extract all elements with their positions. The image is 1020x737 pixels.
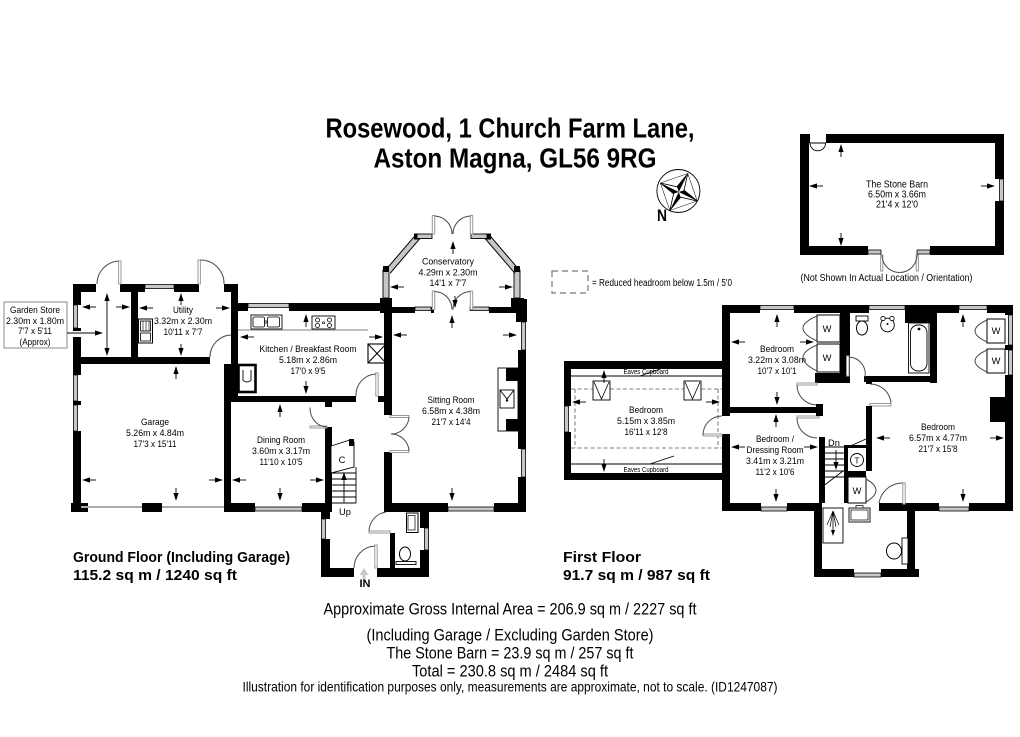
svg-text:(Not Shown In Actual Location: (Not Shown In Actual Location / Orientat… [801,272,973,284]
svg-text:Eaves Cupboard: Eaves Cupboard [624,369,669,376]
svg-text:Sitting Room: Sitting Room [428,395,475,405]
svg-text:Illustration for identificatio: Illustration for identification purposes… [243,679,778,695]
svg-text:W: W [992,326,1001,336]
svg-text:17'3 x 15'11: 17'3 x 15'11 [134,439,177,449]
svg-text:3.41m x 3.21m: 3.41m x 3.21m [746,456,804,466]
svg-text:115.2 sq m / 1240 sq ft: 115.2 sq m / 1240 sq ft [73,568,237,584]
svg-text:3.60m x 3.17m: 3.60m x 3.17m [252,446,310,456]
svg-text:Utility: Utility [173,305,193,315]
svg-text:5.18m x 2.86m: 5.18m x 2.86m [279,355,337,365]
svg-text:Conservatory: Conservatory [422,257,474,267]
svg-text:IN: IN [360,578,371,590]
svg-text:5.15m x 3.85m: 5.15m x 3.85m [617,416,675,426]
svg-text:W: W [853,486,862,496]
svg-text:Eaves Cupboard: Eaves Cupboard [624,467,669,474]
svg-text:Dining Room: Dining Room [257,435,305,445]
svg-text:3.32m x 2.30m: 3.32m x 2.30m [154,316,212,326]
svg-text:4.29m x 2.30m: 4.29m x 2.30m [419,268,478,278]
svg-text:21'7 x 15'8: 21'7 x 15'8 [919,444,958,454]
svg-text:Bedroom: Bedroom [629,405,663,415]
svg-text:N: N [657,207,667,225]
svg-text:Approximate Gross Internal Are: Approximate Gross Internal Area = 206.9 … [324,601,697,619]
svg-text:17'0 x 9'5: 17'0 x 9'5 [291,366,326,376]
svg-text:W: W [823,324,832,334]
svg-text:Dn: Dn [828,438,840,448]
svg-text:The Stone Barn = 23.9 sq m / 2: The Stone Barn = 23.9 sq m / 257 sq ft [387,645,634,663]
svg-text:6.58m x 4.38m: 6.58m x 4.38m [422,406,480,416]
svg-text:21'4 x 12'0: 21'4 x 12'0 [876,200,918,211]
svg-text:10'11 x 7'7: 10'11 x 7'7 [164,327,203,337]
svg-text:Kitchen / Breakfast Room: Kitchen / Breakfast Room [260,344,357,354]
svg-text:16'11 x 12'8: 16'11 x 12'8 [625,427,668,437]
svg-text:Bedroom: Bedroom [921,422,955,432]
svg-text:W: W [992,356,1001,366]
svg-text:Rosewood, 1 Church Farm Lane,: Rosewood, 1 Church Farm Lane, [326,113,695,144]
svg-text:21'7 x 14'4: 21'7 x 14'4 [432,417,471,427]
svg-text:Bedroom: Bedroom [760,344,794,354]
svg-text:Garden Store: Garden Store [10,305,60,315]
svg-text:T: T [854,456,859,466]
svg-text:(Approx): (Approx) [20,337,51,347]
svg-text:Up: Up [339,507,351,517]
svg-text:Aston Magna, GL56 9RG: Aston Magna, GL56 9RG [374,143,657,174]
svg-text:7'7 x 5'11: 7'7 x 5'11 [18,326,52,336]
svg-text:3.22m x 3.08m: 3.22m x 3.08m [748,355,806,365]
svg-text:Garage: Garage [141,417,169,427]
svg-text:W: W [823,353,832,363]
svg-text:Dressing Room: Dressing Room [747,445,804,455]
svg-text:6.57m x 4.77m: 6.57m x 4.77m [909,433,967,443]
svg-text:First Floor: First Floor [563,550,641,566]
svg-text:Bedroom /: Bedroom / [756,434,794,444]
svg-text:91.7 sq m / 987 sq ft: 91.7 sq m / 987 sq ft [563,568,710,584]
svg-text:Ground Floor (Including Garage: Ground Floor (Including Garage) [73,550,290,566]
svg-text:11'10 x 10'5: 11'10 x 10'5 [260,457,303,467]
svg-text:5.26m x 4.84m: 5.26m x 4.84m [126,428,184,438]
svg-text:= Reduced headroom below 1.5m: = Reduced headroom below 1.5m / 5'0 [592,278,732,289]
svg-text:14'1 x 7'7: 14'1 x 7'7 [430,278,467,288]
svg-text:(Including Garage / Excluding: (Including Garage / Excluding Garden Sto… [367,627,654,645]
svg-text:10'7 x 10'1: 10'7 x 10'1 [758,366,797,376]
svg-text:C: C [339,455,346,465]
svg-text:2.30m x 1.80m: 2.30m x 1.80m [6,316,64,326]
svg-text:11'2 x 10'6: 11'2 x 10'6 [756,467,795,477]
